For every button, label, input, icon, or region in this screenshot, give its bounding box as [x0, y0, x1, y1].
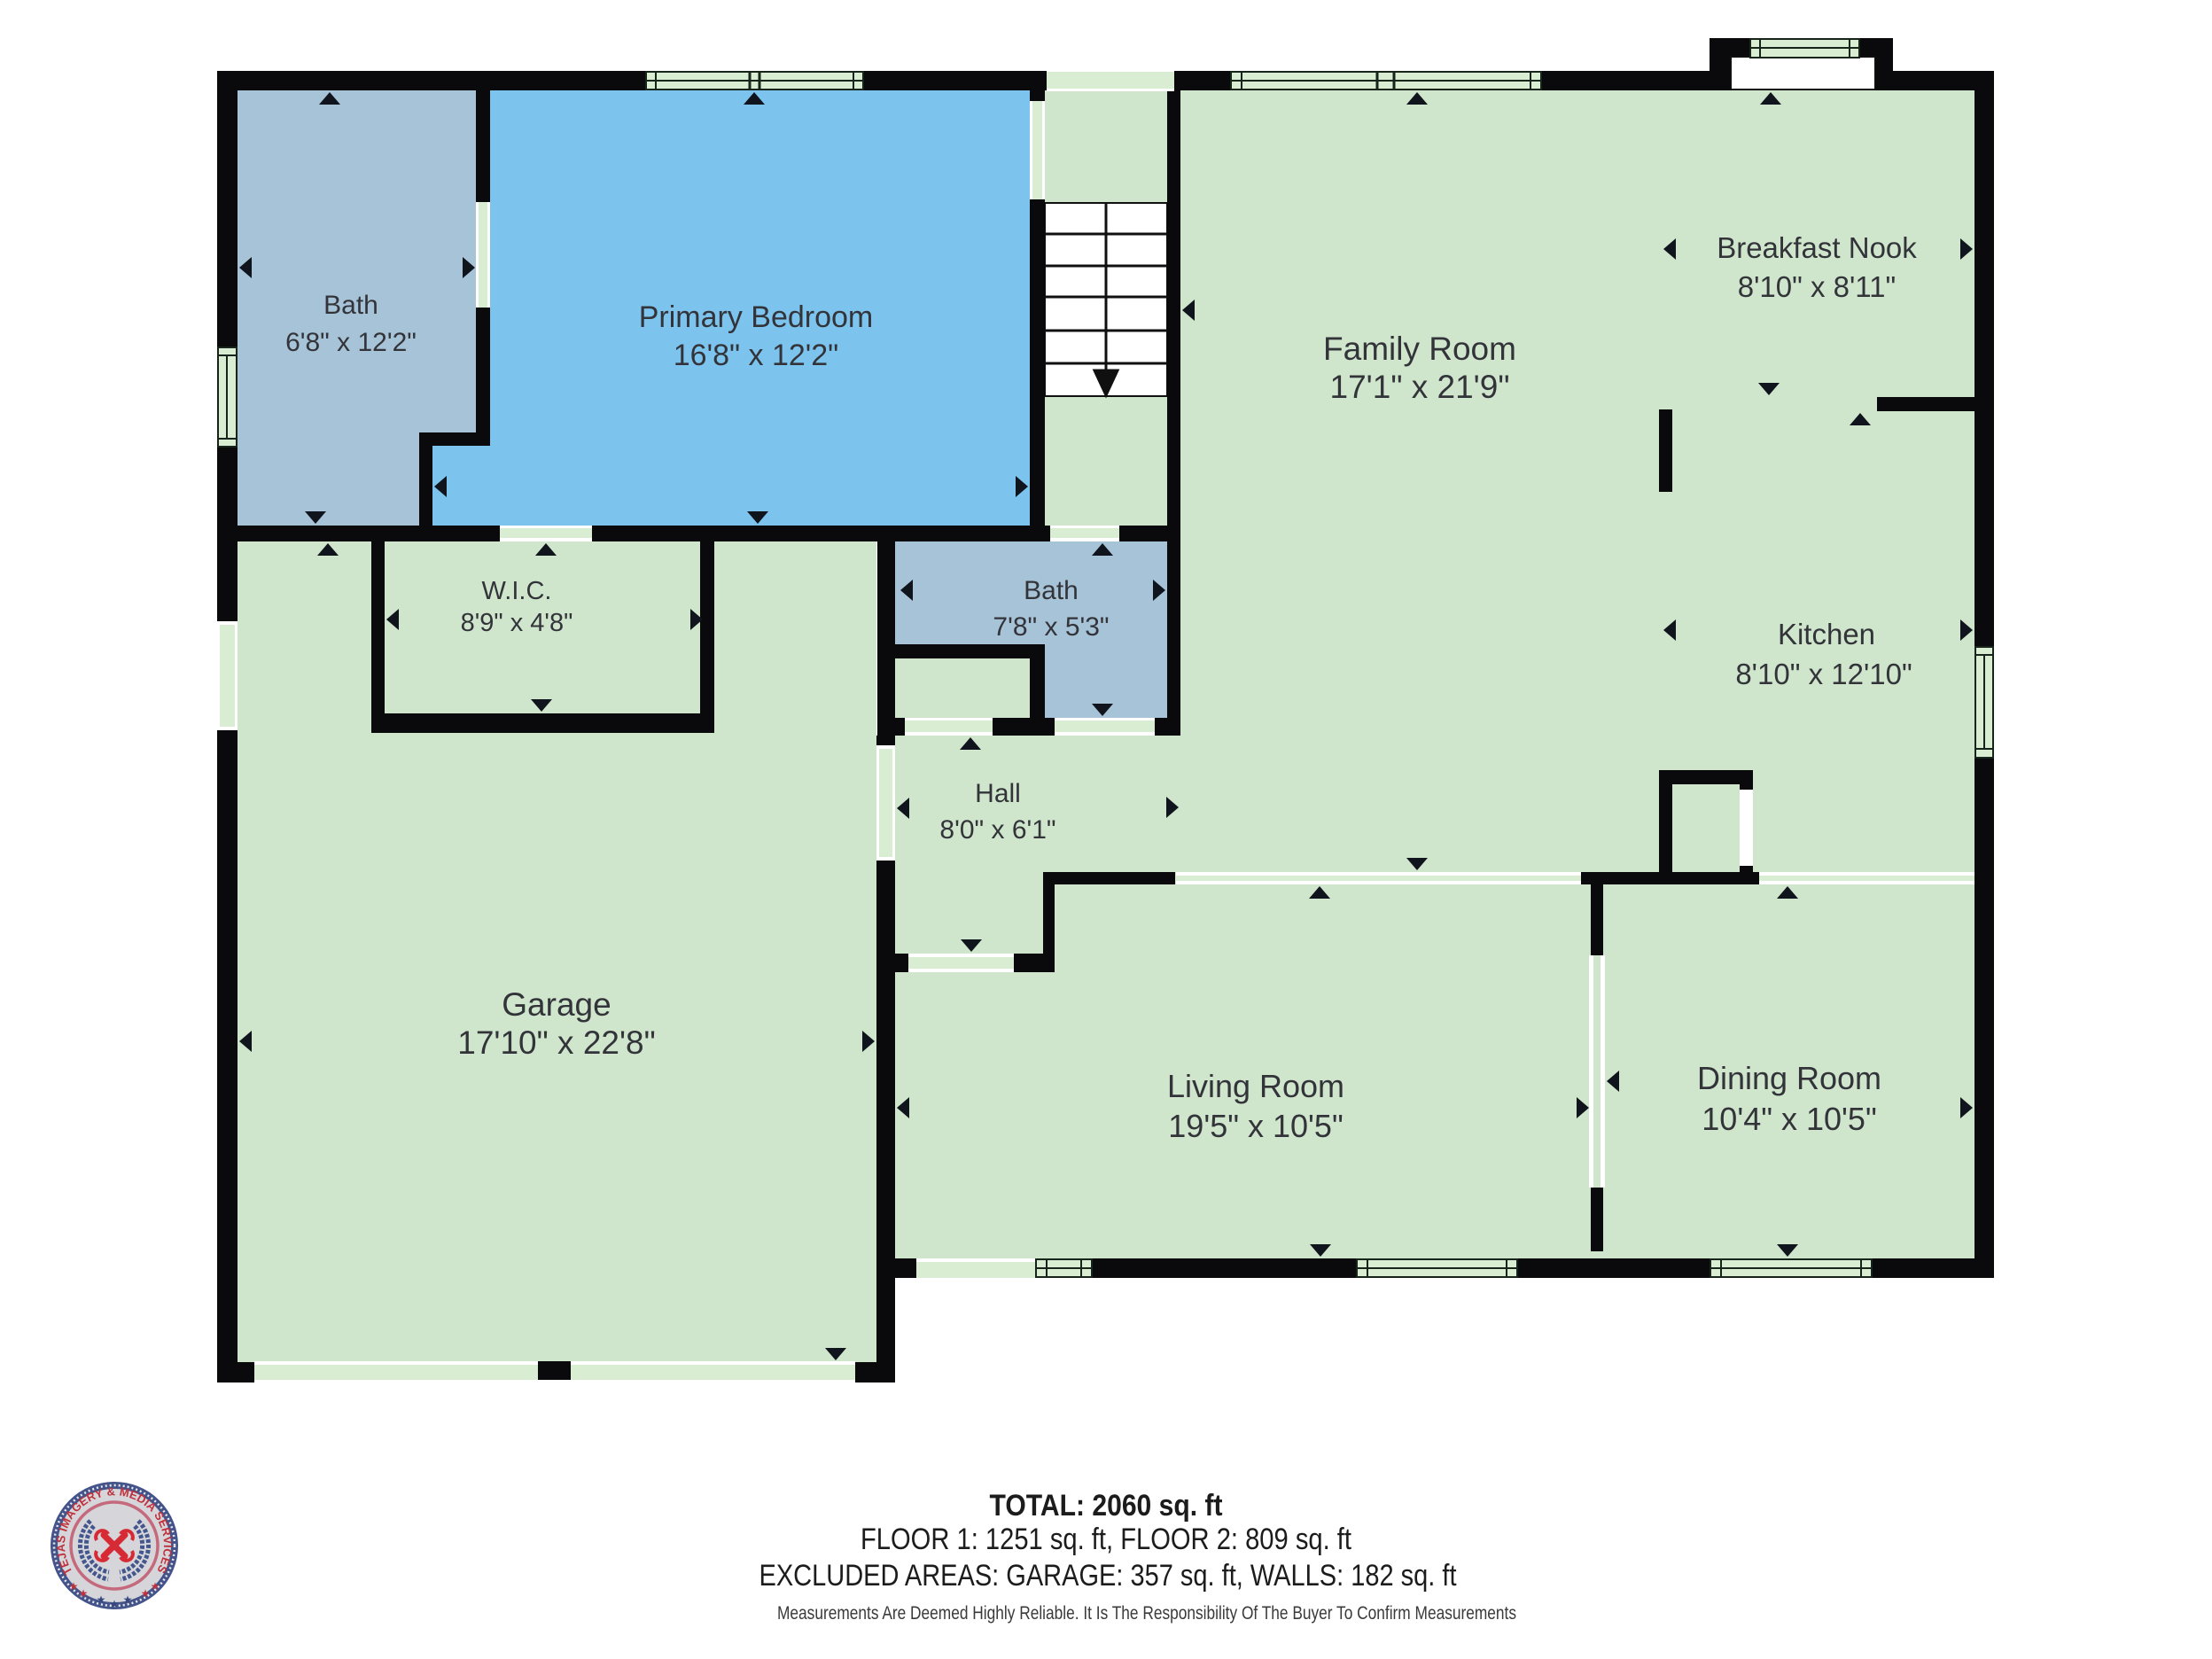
svg-text:EXCLUDED AREAS: GARAGE: 357 sq: EXCLUDED AREAS: GARAGE: 357 sq. ft, WALL…	[759, 1559, 1457, 1593]
svg-text:Bath: Bath	[1024, 576, 1079, 605]
svg-text:Measurements Are Deemed Highly: Measurements Are Deemed Highly Reliable.…	[777, 1603, 1516, 1624]
svg-text:10'4" x 10'5": 10'4" x 10'5"	[1702, 1101, 1876, 1137]
svg-text:Breakfast Nook: Breakfast Nook	[1717, 231, 1917, 264]
svg-text:17'1" x 21'9": 17'1" x 21'9"	[1330, 369, 1510, 405]
svg-text:Garage: Garage	[502, 986, 611, 1023]
svg-text:8'10" x 12'10": 8'10" x 12'10"	[1735, 658, 1912, 690]
svg-text:Dining Room: Dining Room	[1697, 1060, 1881, 1096]
svg-text:★: ★	[97, 1593, 106, 1606]
svg-text:Living Room: Living Room	[1167, 1068, 1344, 1104]
svg-text:★: ★	[110, 1598, 120, 1610]
svg-text:★: ★	[151, 1580, 160, 1593]
svg-text:6'8" x 12'2": 6'8" x 12'2"	[285, 328, 417, 357]
svg-text:Hall: Hall	[975, 779, 1021, 808]
svg-text:7'8" x 5'3": 7'8" x 5'3"	[993, 612, 1109, 642]
svg-text:8'10" x 8'11": 8'10" x 8'11"	[1738, 270, 1897, 303]
svg-text:TOTAL: 2060 sq. ft: TOTAL: 2060 sq. ft	[990, 1489, 1223, 1523]
svg-text:17'10" x 22'8": 17'10" x 22'8"	[457, 1024, 656, 1061]
svg-text:16'8" x 12'2": 16'8" x 12'2"	[674, 339, 838, 372]
svg-text:FLOOR 1: 1251 sq. ft, FLOOR 2:: FLOOR 1: 1251 sq. ft, FLOOR 2: 809 sq. f…	[861, 1523, 1351, 1556]
svg-text:Kitchen: Kitchen	[1778, 618, 1875, 650]
svg-text:★: ★	[141, 1587, 151, 1600]
svg-text:8'0" x 6'1": 8'0" x 6'1"	[939, 815, 1055, 845]
svg-text:★: ★	[123, 1593, 133, 1606]
svg-text:Family Room: Family Room	[1323, 331, 1516, 367]
svg-text:Bath: Bath	[323, 291, 378, 320]
svg-text:Primary Bedroom: Primary Bedroom	[639, 300, 874, 334]
svg-text:★: ★	[69, 1580, 79, 1593]
svg-text:8'9" x 4'8": 8'9" x 4'8"	[461, 609, 573, 637]
svg-text:★: ★	[79, 1587, 89, 1600]
svg-text:19'5" x 10'5": 19'5" x 10'5"	[1168, 1108, 1343, 1144]
svg-text:W.I.C.: W.I.C.	[482, 577, 552, 605]
